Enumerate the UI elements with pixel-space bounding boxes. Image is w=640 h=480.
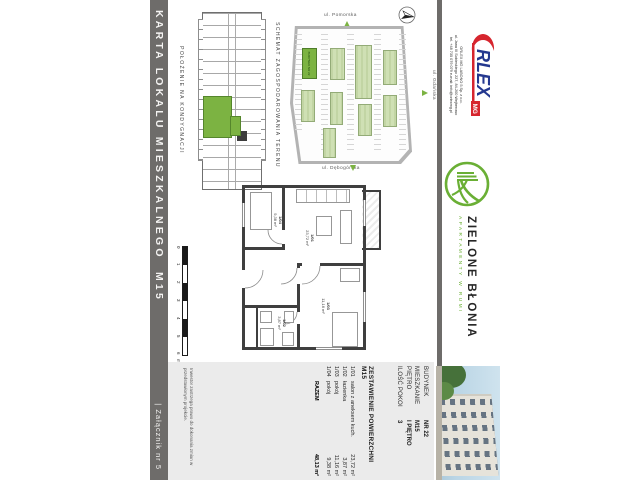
developer-address: ORLEX MG LABONO 5 Sp. z o.o. ul. Jana II…	[448, 25, 463, 125]
data-panel: BUDYNEK NR 22 MIESZKANIE M15 PIĘTRO I PI…	[150, 362, 434, 480]
site-plan-caption: SCHEMAT ZAGOSPODAROWANIA TERENU	[274, 18, 280, 172]
storey-plan-caption: POŁOŻENIE NA KONDYGNACJI	[178, 12, 184, 188]
brand-text: ZIELONE BŁONIA APARTAMENTY W RUMI	[457, 216, 477, 338]
developer-logo-block: RLEX MG ORLEX MG LABONO 5 Sp. z o.o. ul.…	[448, 25, 497, 125]
site-building	[301, 90, 315, 122]
unit-info-row: BUDYNEK NR 22	[422, 366, 428, 454]
storey-balconies	[261, 19, 266, 161]
developer-logo-text: RLEX	[473, 49, 493, 98]
unit-info-row: MIESZKANIE M15	[414, 366, 420, 454]
storey-plan	[202, 12, 262, 190]
apartment-card-page: RLEX MG ORLEX MG LABONO 5 Sp. z o.o. ul.…	[150, 0, 500, 480]
area-table-row: 1/01 salon z aneksem kuch. 23,72 m²	[350, 366, 356, 476]
room-label-pokoj-2: 1/049,38 m²	[273, 200, 282, 240]
street-label-gdanska: ul. Gdańska	[431, 70, 436, 100]
brand-name: ZIELONE BŁONIA	[465, 216, 477, 338]
developer-address-line: ORLEX MG LABONO 5 Sp. z o.o.	[458, 25, 463, 125]
area-table-total: RAZEM 48,13 m²	[314, 366, 320, 476]
developer-logo-icon: RLEX MG	[469, 29, 497, 121]
brand-tagline: APARTAMENTY W RUMI	[457, 216, 462, 338]
site-building	[355, 45, 372, 99]
title-bar: KARTA LOKALU MIESZKALNEGO M15 | Załączni…	[150, 0, 168, 480]
site-building	[330, 92, 343, 125]
site-building	[383, 50, 397, 85]
building-photo	[436, 366, 500, 480]
kitchen-counter	[296, 189, 350, 203]
parking-strip	[374, 34, 381, 152]
room-label-salon: 1/0123,72 m²	[305, 218, 314, 258]
bed-small	[250, 192, 272, 230]
page-title: KARTA LOKALU MIESZKALNEGO M15	[153, 10, 165, 302]
parking-strip	[399, 34, 406, 152]
parking-strip	[347, 34, 354, 152]
site-building-highlighted: BUDYNEK NR 22	[302, 48, 317, 79]
scale-bar: 0 1 2 3 4 5 6 m	[175, 246, 188, 366]
bed-large	[332, 312, 358, 347]
grass-circle-icon	[443, 160, 491, 208]
area-table-row: 1/04 pokój 9,38 m²	[326, 366, 332, 476]
area-table-row: 1/03 pokój 11,16 m²	[334, 366, 340, 476]
highlighted-building-label: BUDYNEK NR 22	[308, 52, 312, 76]
shower	[260, 328, 274, 346]
site-plan: ul. Gdańska ul. Pomorska ul. Dębogórska	[284, 18, 436, 172]
photo-building-facade	[436, 396, 498, 476]
street-arrow-icon	[422, 90, 428, 96]
scale-bar-segments	[182, 246, 188, 356]
unit-info-row: ILOŚĆ POKOI 3	[397, 366, 403, 454]
sofa	[340, 210, 352, 244]
disclaimer-text: Inwestor zastrzega prawo do dokonania zm…	[181, 368, 194, 470]
site-building	[383, 95, 397, 127]
area-table-row: 1/02 łazienka 3,87 m²	[342, 366, 348, 476]
washing-machine	[260, 311, 272, 323]
highlighted-unit	[203, 96, 232, 138]
dining-table	[316, 216, 332, 236]
header-divider	[437, 0, 442, 366]
site-building	[330, 48, 345, 80]
site-building	[323, 128, 336, 158]
room-label-pokoj-1: 1/0311,16 m²	[321, 286, 330, 326]
attachment-label: | Załącznik nr 5	[155, 403, 164, 470]
unit-info-row: PIĘTRO I PIĘTRO	[405, 366, 411, 454]
scale-bar-ticks: 0 1 2 3 4 5 6 m	[175, 246, 182, 366]
area-table-title: ZESTAWIENIE POWIERZCHNI M15	[361, 366, 375, 476]
street-label-pomorska: ul. Pomorska	[324, 13, 357, 18]
brand-logo-block: ZIELONE BŁONIA APARTAMENTY W RUMI	[441, 160, 493, 338]
photo-ground	[436, 366, 442, 480]
highlighted-unit-extension	[230, 116, 241, 136]
document-canvas: RLEX MG ORLEX MG LABONO 5 Sp. z o.o. ul.…	[0, 0, 640, 480]
wardrobe	[340, 268, 360, 282]
storey-balconies	[198, 19, 203, 161]
site-building	[358, 104, 372, 136]
developer-address-line: tel. +48 735 079 079 e-mail: info@orlexm…	[448, 25, 453, 125]
street-arrow-icon	[350, 165, 356, 171]
developer-address-line: ul. Jana III Sobieskiego 227, 84-200 Wej…	[453, 25, 458, 125]
developer-logo-badge: MG	[471, 104, 478, 114]
unit-info-table: BUDYNEK NR 22 MIESZKANIE M15 PIĘTRO I PI…	[397, 366, 429, 476]
room-label-lazienka: 1/023,87 m²	[277, 308, 286, 338]
area-table: 1/01 salon z aneksem kuch. 23,72 m² 1/02…	[314, 366, 356, 476]
